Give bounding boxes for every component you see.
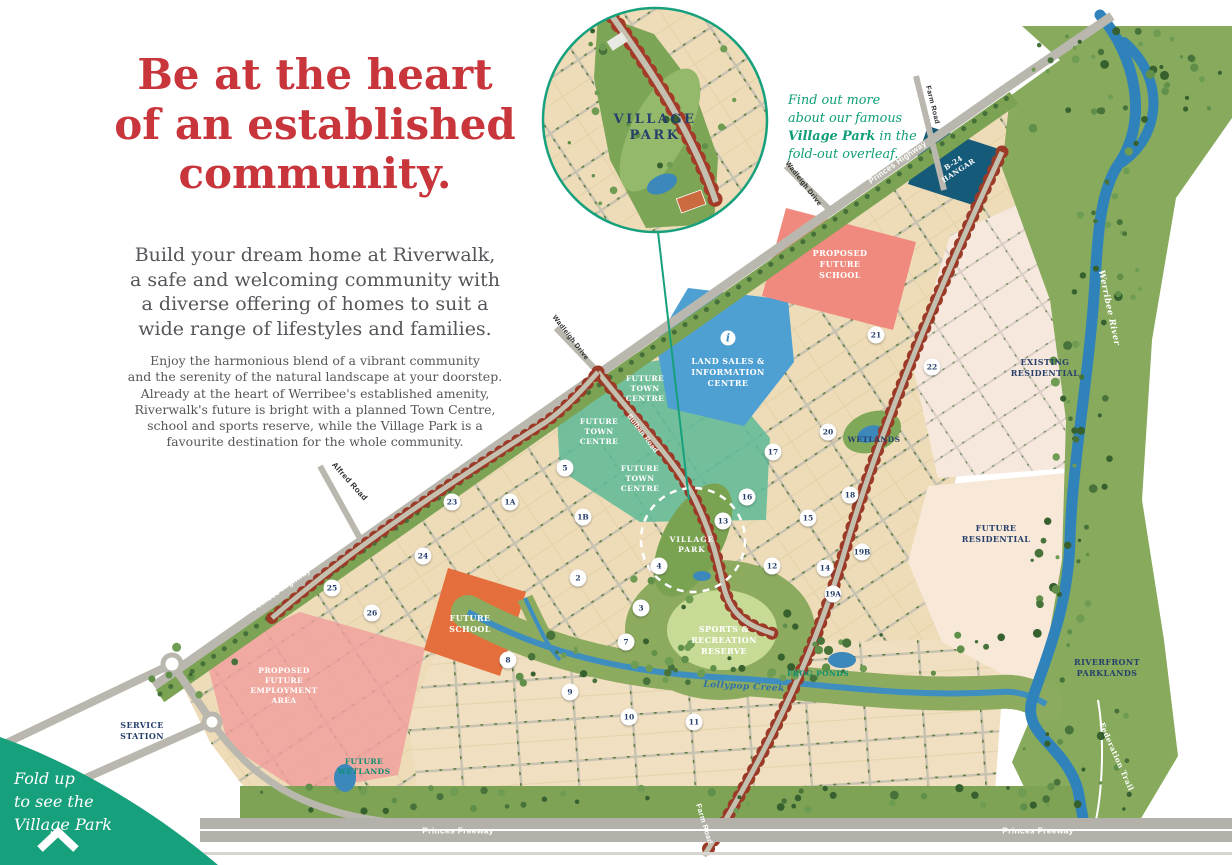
road-label-princes-highway-1: Princes Highway (251, 566, 313, 614)
stage-marker-1b: 1B (575, 509, 592, 526)
zone-label-employment: PROPOSED FUTURE EMPLOYMENT AREA (250, 666, 317, 707)
zone-label-wetlands: WETLANDS (848, 435, 901, 445)
stage-marker-7: 7 (618, 634, 635, 651)
information-icon: i (721, 331, 736, 346)
road-label-princes-freeway-2: Princes Freeway (1002, 825, 1074, 836)
stage-marker-3: 3 (633, 600, 650, 617)
road-label-wadleigh-drive-2: Wadleigh Drive (783, 160, 824, 209)
callout-bold: Village Park (788, 129, 875, 144)
zone-label-future-residential: FUTURE RESIDENTIAL (962, 523, 1031, 545)
stage-marker-22: 22 (924, 359, 941, 376)
inset-village-park-label: VILLAGE PARK (613, 112, 696, 145)
zone-label-land-sales: LAND SALES & INFORMATION CENTRE (691, 356, 764, 388)
label-layer: Be at the heart of an established commun… (0, 0, 1232, 865)
brochure-page: Be at the heart of an established commun… (0, 0, 1232, 865)
zone-label-village-park: VILLAGE PARK (670, 535, 715, 555)
zone-label-future-school: FUTURE SCHOOL (449, 613, 491, 635)
stage-marker-1a: 1A (502, 494, 519, 511)
stage-marker-9: 9 (562, 684, 579, 701)
zone-label-future-wetlands: FUTURE WETLANDS (338, 757, 391, 777)
stage-marker-11: 11 (686, 714, 703, 731)
stage-marker-13: 13 (715, 513, 732, 530)
road-label-farm-road-south: Farm Road (693, 802, 715, 845)
zone-label-b24-hangar: B-24 HANGAR (935, 149, 977, 186)
stage-marker-17: 17 (765, 444, 782, 461)
stage-marker-10: 10 (621, 709, 638, 726)
stage-marker-2: 2 (570, 570, 587, 587)
lead-paragraph: Build your dream home at Riverwalk, a sa… (95, 243, 535, 342)
stage-marker-21: 21 (868, 327, 885, 344)
stage-marker-23: 23 (444, 494, 461, 511)
stage-marker-19a: 19A (825, 586, 842, 603)
road-label-princes-freeway-1: Princes Freeway (422, 825, 494, 836)
zone-label-future-town-centre-1: FUTURE TOWN CENTRE (626, 374, 664, 404)
water-label-lollypop-creek: Lollypop Creek (703, 679, 785, 695)
stage-marker-15: 15 (800, 510, 817, 527)
road-label-wadleigh-drive-1: Wadleigh Drive (550, 314, 591, 363)
stage-marker-26: 26 (364, 605, 381, 622)
callout-prefix: Find out more about our famous (788, 93, 902, 126)
stage-marker-24: 24 (415, 548, 432, 565)
road-label-alfred-road: Alfred Road (329, 460, 370, 503)
stage-marker-19b: 19B (854, 544, 871, 561)
zone-label-service-station: SERVICE STATION (120, 720, 164, 742)
zone-label-existing-residential: EXISTING RESIDENTIAL (1011, 357, 1080, 379)
stage-marker-14: 14 (817, 560, 834, 577)
page-title: Be at the heart of an established commun… (95, 50, 535, 199)
detail-paragraph: Enjoy the harmonious blend of a vibrant … (120, 353, 510, 451)
trail-label-federation-trail: Federation Trail (1096, 721, 1135, 793)
zone-label-frog-ponds: FROG PONDS (787, 669, 849, 679)
stage-marker-25: 25 (324, 580, 341, 597)
road-label-farm-road-north: Farm Road (923, 85, 942, 125)
stage-marker-12: 12 (764, 558, 781, 575)
fold-note: Fold up to see the Village Park (14, 767, 112, 837)
stage-marker-8: 8 (500, 652, 517, 669)
stage-marker-4: 4 (651, 558, 668, 575)
zone-label-proposed-future-school: PROPOSED FUTURE SCHOOL (813, 248, 868, 280)
road-label-bulban-road: Bulban Road (624, 413, 660, 456)
zone-label-riverfront-parklands: RIVERFRONT PARKLANDS (1074, 657, 1140, 679)
zone-label-future-town-centre-2: FUTURE TOWN CENTRE (580, 417, 618, 447)
water-label-werribee-river: Werribee River (1094, 269, 1121, 347)
zone-label-future-town-centre-3: FUTURE TOWN CENTRE (621, 464, 659, 494)
zone-label-sports-reserve: SPORTS & RECREATION RESERVE (691, 624, 757, 656)
stage-marker-18: 18 (842, 487, 859, 504)
stage-marker-16: 16 (739, 489, 756, 506)
stage-marker-20: 20 (820, 424, 837, 441)
stage-marker-5: 5 (557, 460, 574, 477)
